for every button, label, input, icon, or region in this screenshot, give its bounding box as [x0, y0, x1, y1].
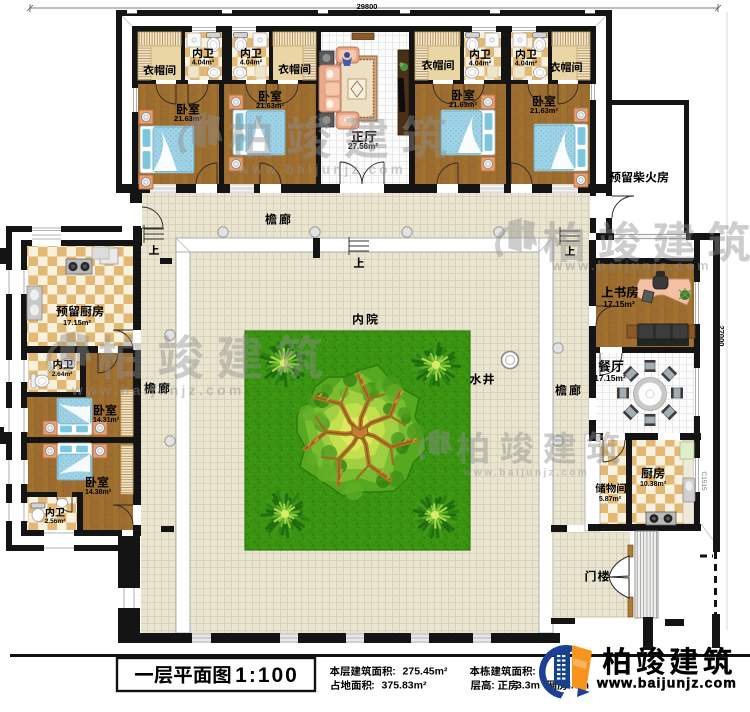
- svg-text:4.04m²: 4.04m²: [240, 60, 263, 67]
- svg-text:2.56m²: 2.56m²: [45, 518, 66, 525]
- svg-text:5.87m²: 5.87m²: [599, 496, 622, 503]
- svg-text:10.38m²: 10.38m²: [640, 481, 667, 488]
- svg-text::: :: [532, 666, 536, 678]
- svg-text:1:100: 1:100: [235, 664, 299, 687]
- svg-text::: :: [392, 666, 396, 678]
- svg-text::: :: [371, 680, 375, 692]
- svg-text:275.45m²: 275.45m²: [403, 666, 448, 678]
- svg-text:14.38m²: 14.38m²: [85, 489, 112, 496]
- svg-text:4.04m²: 4.04m²: [469, 61, 492, 68]
- svg-text:17.15m²: 17.15m²: [594, 373, 626, 383]
- svg-text:www.baijunjz.com: www.baijunjz.com: [596, 675, 737, 691]
- svg-text:3.3m: 3.3m: [516, 680, 540, 692]
- svg-text:17.15m²: 17.15m²: [63, 318, 91, 327]
- svg-text:C1515: C1515: [700, 471, 707, 491]
- svg-text:21.63m²: 21.63m²: [530, 106, 558, 115]
- svg-text:14.31m²: 14.31m²: [93, 417, 120, 424]
- svg-text::: :: [491, 680, 495, 692]
- svg-text:www.baijunjz.com: www.baijunjz.com: [71, 382, 245, 398]
- svg-text:2.64m²: 2.64m²: [52, 371, 73, 378]
- svg-text:375.83m²: 375.83m²: [382, 680, 427, 692]
- svg-text:www.baijunjz.com: www.baijunjz.com: [463, 468, 590, 479]
- svg-text:4.04m²: 4.04m²: [515, 61, 538, 68]
- svg-text:www.baijunjz.com: www.baijunjz.com: [237, 162, 406, 177]
- svg-text:4.04m²: 4.04m²: [192, 60, 215, 67]
- svg-text:www.baijunjz.com: www.baijunjz.com: [551, 258, 711, 273]
- svg-text:29800: 29800: [357, 2, 378, 11]
- svg-text:21.63m²: 21.63m²: [256, 101, 284, 110]
- svg-text:17.15m²: 17.15m²: [603, 299, 635, 309]
